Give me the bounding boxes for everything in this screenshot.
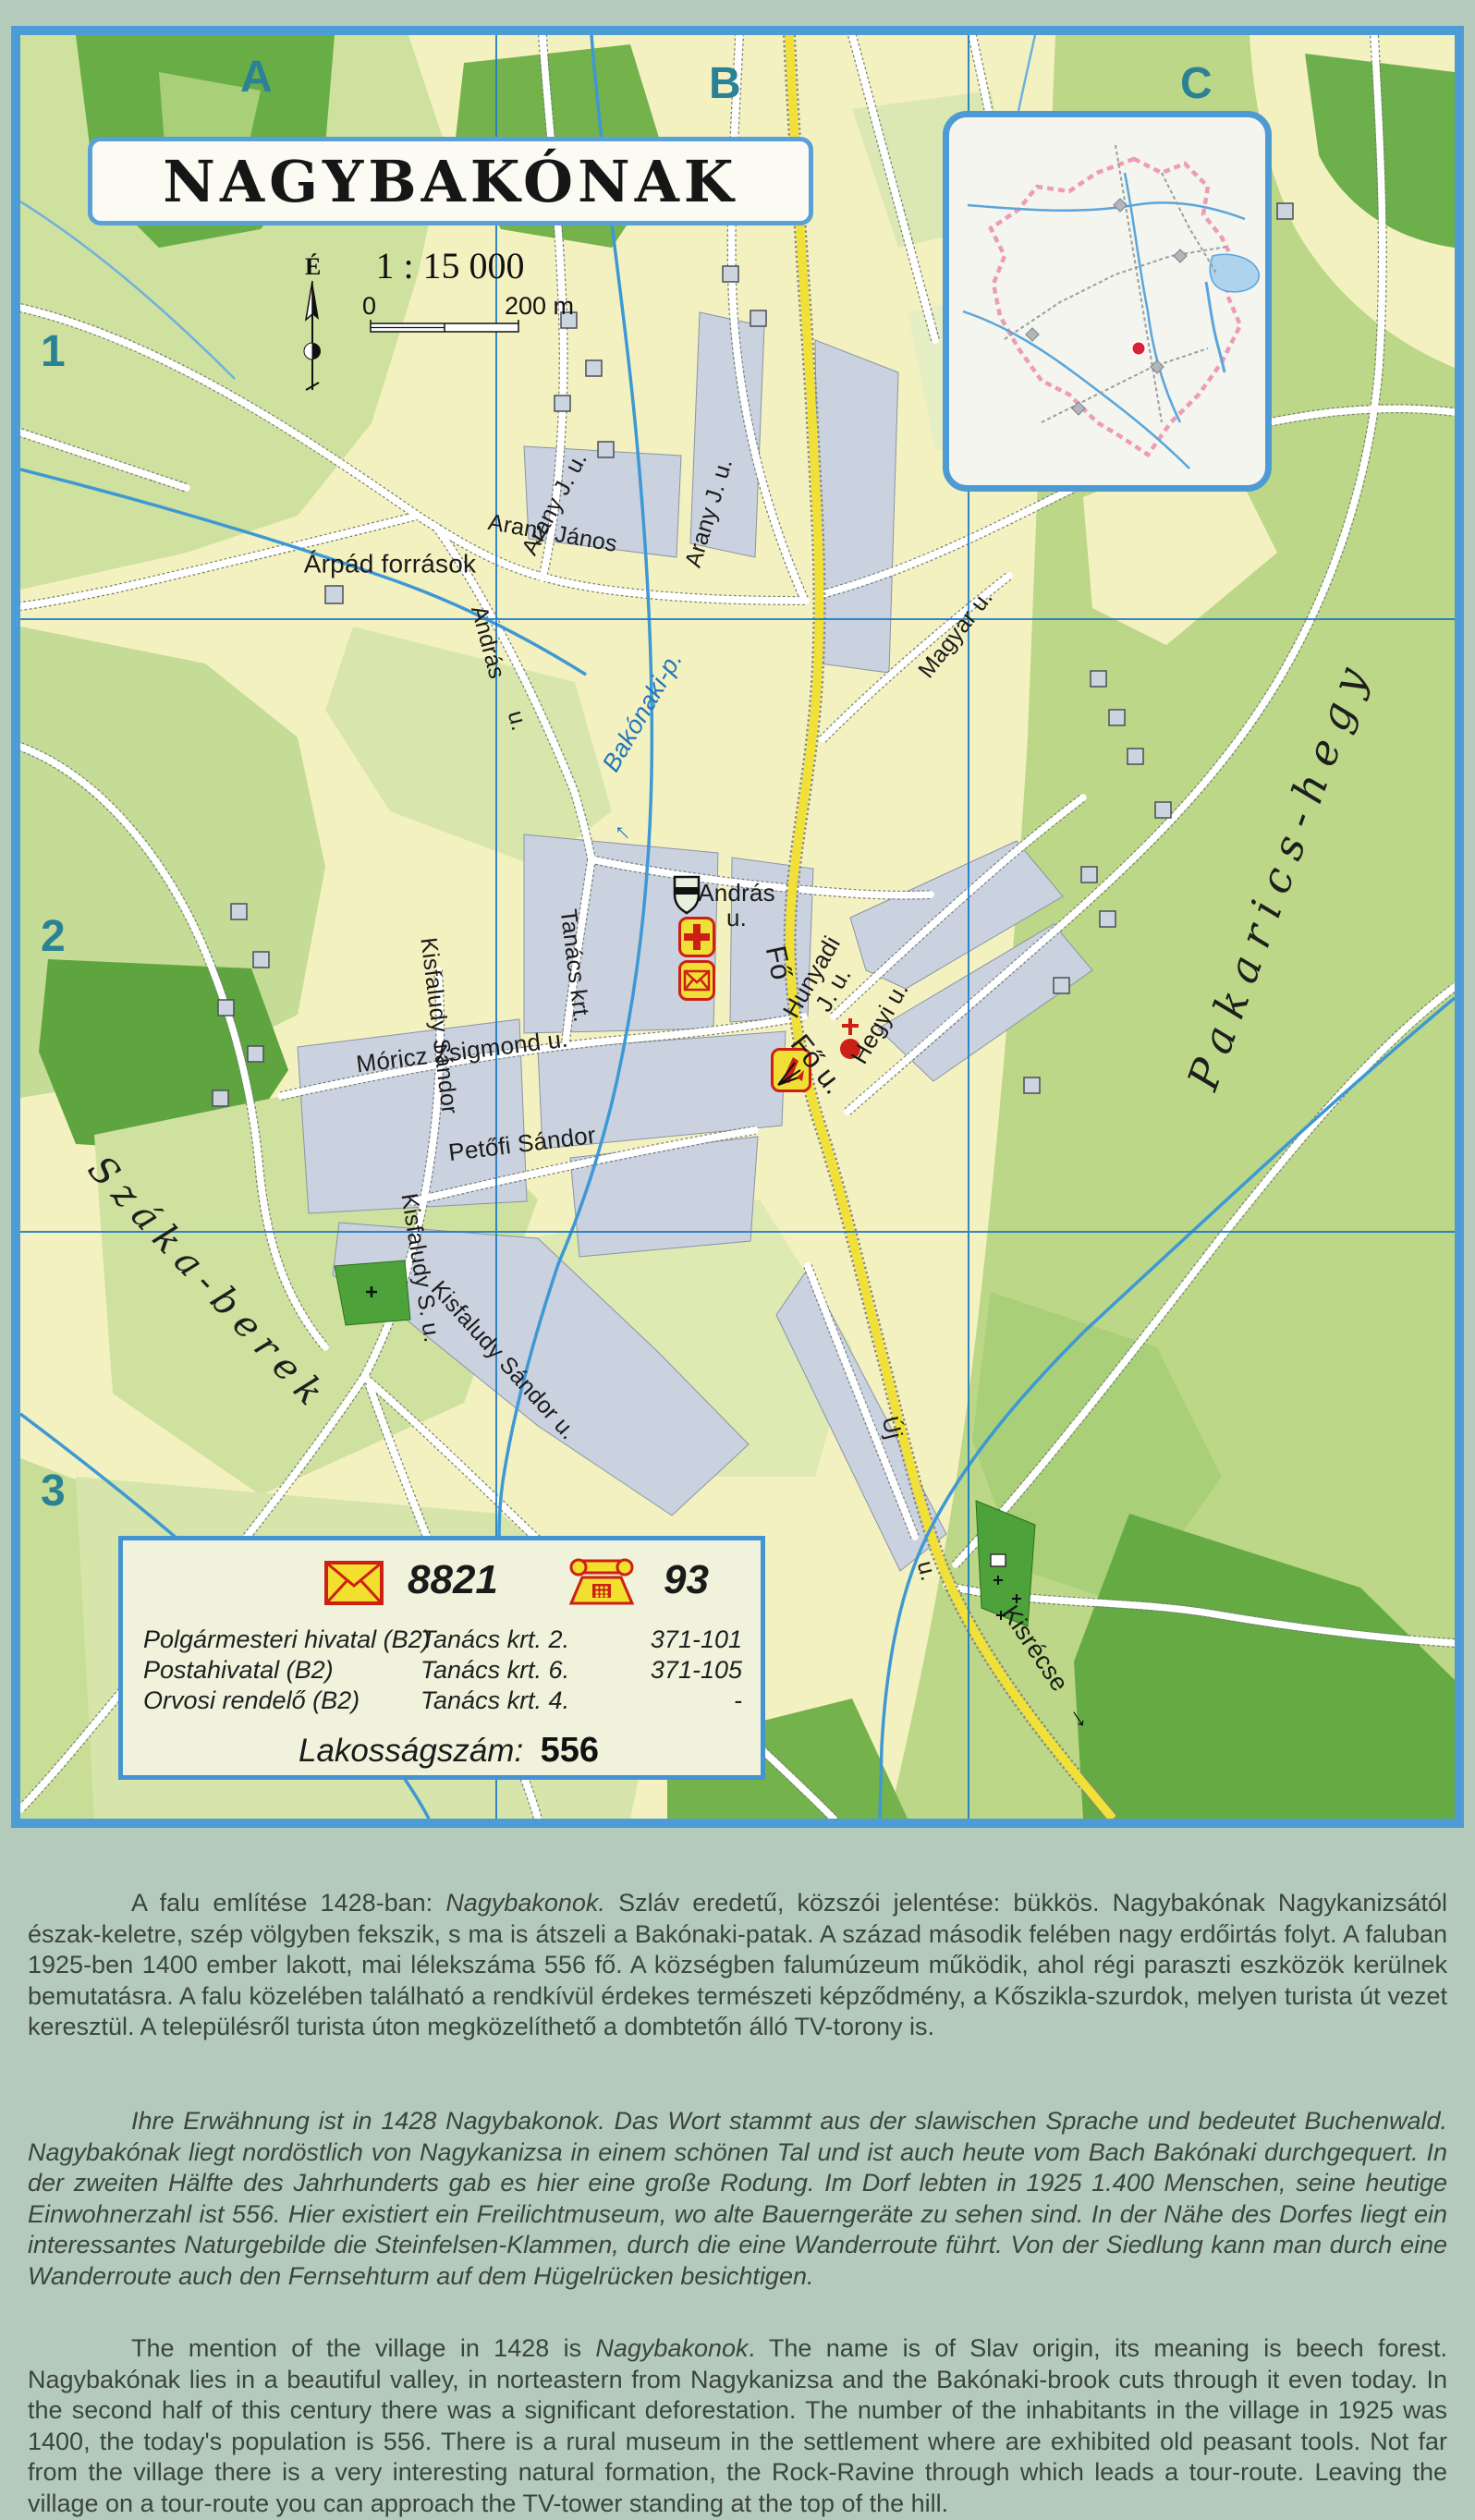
grid-col-b: B — [709, 58, 741, 109]
population-value: 556 — [541, 1731, 599, 1770]
map-title: NAGYBAKÓNAK — [163, 148, 737, 215]
legend-row-phone: 371-105 — [622, 1656, 742, 1685]
paragraph-en-pre: The mention of the village in 1428 is — [131, 2334, 595, 2362]
legend-row-name: Postahivatal (B2) — [143, 1656, 334, 1685]
street-label-andras-center: András u. — [698, 881, 775, 931]
paragraph-english: The mention of the village in 1428 is Na… — [28, 2333, 1447, 2520]
street-label-andras-center-line1: András — [698, 881, 775, 906]
legend-row-address: Tanács krt. 4. — [421, 1686, 569, 1715]
paragraph-en-village-name: Nagybakonok — [595, 2334, 748, 2362]
grid-col-c: C — [1180, 58, 1213, 109]
street-label-fo-u-upper: Fő — [760, 943, 796, 982]
paragraph-de-text: Ihre Erwähnung ist in 1428 Nagybakonok. … — [28, 2107, 1447, 2290]
post-office-envelope-icon — [678, 960, 715, 1005]
scale-ratio: 1 : 15 000 — [344, 244, 556, 287]
scale-zero: 0 — [362, 292, 376, 321]
paragraph-hu-village-name: Nagybakonok. — [445, 1889, 605, 1917]
legend-row-address: Tanács krt. 6. — [421, 1656, 569, 1685]
paragraph-hungarian: A falu említése 1428-ban: Nagybakonok. S… — [28, 1888, 1447, 2043]
legend-row-name: Orvosi rendelő (B2) — [143, 1686, 360, 1715]
postal-envelope-icon — [324, 1561, 384, 1610]
grid-row-1: 1 — [41, 326, 66, 377]
north-arrow-icon — [294, 277, 331, 402]
legend-row-phone: - — [622, 1686, 742, 1715]
scale-end: 200 m — [505, 292, 574, 321]
scale-bar — [370, 320, 525, 341]
map-title-box: NAGYBAKÓNAK — [88, 137, 813, 225]
county-inset-map — [943, 111, 1272, 492]
town-hall-shield-icon — [673, 874, 701, 919]
postal-code: 8821 — [408, 1557, 498, 1603]
grid-col-a: A — [240, 52, 273, 103]
grid-row-2: 2 — [41, 911, 66, 962]
town-map-panel: A B C 1 2 3 NAGYBAKÓNAK É 1 : 15 000 0 2… — [11, 26, 1464, 1828]
legend-row-phone: 371-101 — [622, 1625, 742, 1654]
phone-prefix: 93 — [664, 1557, 709, 1603]
phone-icon — [565, 1557, 639, 1612]
legend-row-name: Polgármesteri hivatal (B2) — [143, 1625, 431, 1654]
legend-row-address: Tanács krt. 2. — [421, 1625, 569, 1654]
scanned-map-page: { "page_title": "NAGYBAKÓNAK", "map": { … — [0, 0, 1475, 2494]
paragraph-hu-pre: A falu említése 1428-ban: — [131, 1889, 445, 1917]
place-label-arpad-forrasok: Árpád források — [304, 550, 476, 577]
population-line: Lakosságszám: 556 — [299, 1731, 599, 1771]
legend-box: 8821 93 Polgármesteri hivatal (B2) Tanác… — [118, 1536, 765, 1780]
street-label-andras-center-line2: u. — [698, 906, 775, 931]
paragraph-german: Ihre Erwähnung ist in 1428 Nagybakonok. … — [28, 2106, 1447, 2293]
village-location-dot — [1132, 342, 1146, 356]
population-label: Lakosságszám: — [299, 1733, 523, 1769]
grid-row-3: 3 — [41, 1466, 66, 1516]
